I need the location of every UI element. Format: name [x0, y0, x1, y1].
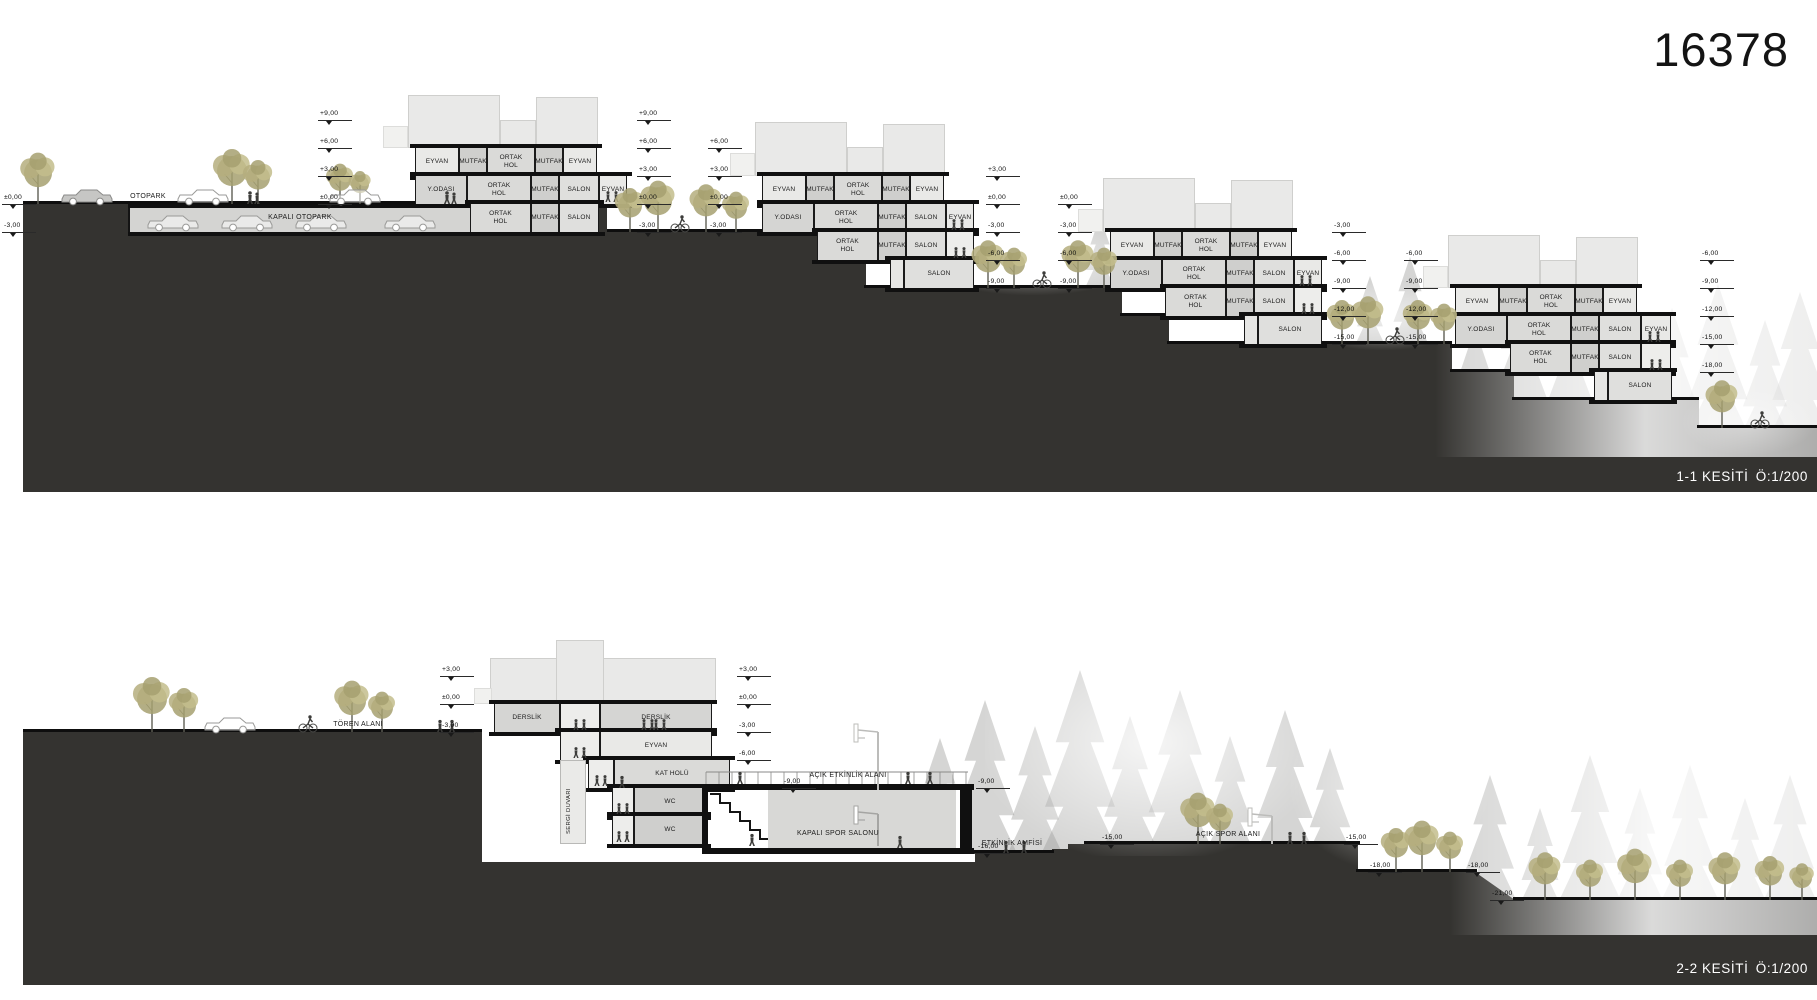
- floor-slab: [1589, 400, 1677, 404]
- elevation-arrow-icon: [1340, 317, 1346, 321]
- tree-canopy: [358, 174, 370, 186]
- elevation-arrow-icon: [1352, 845, 1358, 849]
- room-label: MUTFAK: [459, 158, 487, 166]
- elevation-value: -18,00: [1468, 862, 1488, 869]
- room-label: ORTAK HOL: [500, 154, 523, 170]
- elevation-value: -15,00: [1346, 834, 1366, 841]
- elevation-arrow-icon: [1708, 317, 1714, 321]
- tree-canopy: [1632, 853, 1651, 872]
- room-label: MUTFAK: [1571, 354, 1599, 362]
- elevation-arrow-icon: [10, 205, 16, 209]
- conifer-tree-icon: [1355, 276, 1386, 346]
- person-icon: [737, 772, 743, 784]
- room-label: ORTAK HOL: [488, 182, 511, 198]
- tree-canopy: [1758, 862, 1782, 886]
- tree-canopy: [1717, 852, 1733, 868]
- tree-canopy: [1755, 861, 1772, 878]
- person-head: [1302, 832, 1305, 835]
- tree-branch: [1797, 880, 1802, 886]
- tree-icon: [1666, 860, 1693, 900]
- elevation-arrow-icon: [326, 149, 332, 153]
- tree-canopy: [1381, 833, 1398, 850]
- elevation-line: [986, 288, 1020, 289]
- person-head: [738, 772, 741, 775]
- cyclist-head: [680, 215, 683, 218]
- floor-slab: [465, 232, 604, 236]
- elevation-arrow-icon: [1376, 873, 1382, 877]
- elevation-value: -9,00: [1702, 278, 1719, 285]
- room-label: SALON: [1608, 354, 1631, 362]
- room-label: MUTFAK: [878, 214, 906, 222]
- elevation-line: [737, 732, 771, 733]
- tree-canopy: [1583, 860, 1597, 874]
- tree-canopy: [1673, 860, 1687, 874]
- elevation-arrow-icon: [1340, 345, 1346, 349]
- tree-canopy: [734, 195, 749, 210]
- bike-frame: [1390, 331, 1400, 340]
- tree-canopy: [256, 164, 272, 180]
- room-label: SALON: [1262, 298, 1285, 306]
- tree-branch: [624, 208, 630, 215]
- tree-canopy: [35, 157, 54, 176]
- tree-icon: [1528, 852, 1560, 900]
- tree-branch: [252, 180, 258, 187]
- tree-canopy: [143, 677, 162, 696]
- elevation-line: [1700, 316, 1734, 317]
- room-label: ORTAK HOL: [836, 238, 859, 254]
- elevation-value: -12,00: [1406, 306, 1426, 313]
- building-massing: [730, 153, 755, 176]
- elevation-value: -9,00: [1060, 278, 1077, 285]
- room-label: SALON: [1608, 326, 1631, 334]
- tree-canopy: [1448, 835, 1463, 850]
- elevation-arrow-icon: [716, 177, 722, 181]
- room-stair: [1594, 372, 1608, 400]
- elevation-line: [1404, 288, 1438, 289]
- elevation-value: -12,00: [1702, 306, 1722, 313]
- tree-canopy: [1588, 863, 1603, 878]
- tree-branch: [1191, 816, 1198, 824]
- elevation-line: [708, 176, 742, 177]
- tree-canopy: [169, 693, 186, 710]
- room-label: ORTAK HOL: [1528, 322, 1551, 338]
- elevation-line: [1490, 900, 1524, 901]
- tree-canopy: [243, 165, 260, 182]
- person-head: [1288, 832, 1291, 835]
- elevation-line: [737, 760, 771, 761]
- elevation-line: [1700, 260, 1734, 261]
- room-label: SALON: [927, 270, 950, 278]
- elevation-value: -9,00: [988, 278, 1005, 285]
- ground-line: [1513, 897, 1817, 900]
- cyclist-head: [1760, 411, 1763, 414]
- tree-canopy: [20, 158, 40, 178]
- room-label: MUTFAK: [1226, 270, 1254, 278]
- tree-canopy: [1443, 832, 1457, 846]
- tree-icon: [1576, 860, 1603, 900]
- conifer-tree-icon: [1038, 670, 1122, 860]
- elevation-value: -15,00: [1406, 334, 1426, 341]
- elevation-line: [986, 232, 1020, 233]
- tree-canopy: [725, 197, 747, 219]
- tree-canopy: [1012, 251, 1027, 266]
- competition-board: 16378 EYVANMUTFAKORTAK HOLMUTFAKEYVANY.O…: [0, 0, 1817, 1000]
- site-area-label: AÇIK ETKİNLİK ALANI: [810, 772, 887, 779]
- elevation-line: [737, 704, 771, 705]
- room-label: EYVAN: [916, 186, 939, 194]
- elevation-arrow-icon: [994, 289, 1000, 293]
- elevation-value: -9,00: [1406, 278, 1423, 285]
- elevation-arrow-icon: [745, 705, 751, 709]
- person-body: [927, 775, 933, 784]
- elevation-line: [737, 676, 771, 677]
- elevation-line: [1404, 260, 1438, 261]
- tree-canopy: [1528, 857, 1547, 876]
- elevation-value: -3,00: [710, 222, 727, 229]
- room-stair: [1244, 316, 1258, 344]
- tree-canopy: [343, 681, 360, 698]
- hall-stair-well: [708, 790, 768, 848]
- elevation-value: -9,00: [1334, 278, 1351, 285]
- room-label: MUTFAK: [1499, 298, 1527, 306]
- room-label: Y.ODASI: [428, 186, 455, 194]
- room-label: ORTAK HOL: [1183, 266, 1206, 282]
- room-salon: SALON: [1258, 316, 1322, 344]
- elevation-value: ±0,00: [988, 194, 1006, 201]
- elevation-line: [708, 204, 742, 205]
- tree-canopy: [1714, 380, 1730, 396]
- person-head: [248, 191, 252, 195]
- site-area-label: ETKİNLİK AMFİSİ: [982, 840, 1043, 847]
- tree-canopy: [1720, 385, 1738, 403]
- building-massing: [536, 97, 598, 148]
- elevation-value: -3,00: [988, 222, 1005, 229]
- person-icon: [927, 772, 933, 784]
- tree-canopy: [1189, 793, 1206, 810]
- tree-branch: [700, 206, 707, 214]
- ground-line: [1697, 425, 1817, 428]
- site-area-label: OTOPARK: [130, 193, 166, 200]
- floor-slab: [607, 844, 711, 848]
- cyclist-head: [308, 715, 311, 718]
- elevation-line: [2, 204, 36, 205]
- tree-canopy: [1537, 852, 1553, 868]
- cyclist-head: [1042, 271, 1045, 274]
- tree-icon: [1430, 304, 1457, 344]
- tree-canopy: [644, 187, 672, 215]
- room-label: SALON: [1262, 270, 1285, 278]
- elevation-line: [782, 788, 816, 789]
- room-label: SALON: [567, 186, 590, 194]
- elevation-arrow-icon: [448, 677, 454, 681]
- floor-slab: [1239, 344, 1327, 348]
- elevation-arrow-icon: [984, 789, 990, 793]
- room-label: SALON: [1278, 326, 1301, 334]
- room-label: EYVAN: [1297, 270, 1320, 278]
- elevation-value: -3,00: [1060, 222, 1077, 229]
- hall-floor-slab: [702, 848, 974, 854]
- elevation-arrow-icon: [326, 205, 332, 209]
- elevation-value: -3,00: [4, 222, 21, 229]
- tree-canopy: [1218, 807, 1233, 822]
- tree-canopy: [133, 683, 155, 705]
- tree-branch: [1415, 844, 1422, 852]
- room-stair: [612, 816, 634, 844]
- elevation-value: -6,00: [1702, 250, 1719, 257]
- tree-canopy: [24, 159, 52, 187]
- person-head: [906, 772, 909, 775]
- tree-canopy: [223, 149, 242, 168]
- elevation-line: [1332, 288, 1366, 289]
- tree-branch: [225, 174, 233, 183]
- tree-icon: [1708, 852, 1740, 900]
- elevation-value: -6,00: [1406, 250, 1423, 257]
- tree-branch: [1539, 874, 1546, 882]
- tree-branch: [356, 186, 361, 191]
- conifer-tree-icon: [1518, 808, 1562, 908]
- tree-branch: [1628, 872, 1635, 880]
- room-label: EYVAN: [426, 158, 449, 166]
- conifer-tree-icon: [1204, 736, 1257, 856]
- tree-icon: [243, 160, 272, 204]
- elevation-arrow-icon: [326, 121, 332, 125]
- tree-icon: [1789, 863, 1813, 900]
- elevation-arrow-icon: [745, 761, 751, 765]
- bike-frame: [1755, 415, 1765, 424]
- tree-branch: [145, 702, 153, 711]
- tree-canopy: [1436, 836, 1452, 852]
- room-label: MUTFAK: [882, 186, 910, 194]
- tree-canopy: [1439, 837, 1461, 859]
- section-2-title: 2-2 KESİTİ Ö:1/200: [1548, 961, 1808, 976]
- floor-slab: [885, 288, 979, 292]
- elevation-line: [1058, 232, 1092, 233]
- room-wc: WC: [634, 816, 706, 844]
- tree-canopy: [1792, 868, 1812, 888]
- elevation-arrow-icon: [745, 733, 751, 737]
- tree-canopy: [1705, 385, 1724, 404]
- tree-canopy: [1789, 867, 1803, 881]
- room-label: EYVAN: [569, 158, 592, 166]
- bike-frame: [1037, 275, 1047, 284]
- hoop-arm: [858, 730, 878, 732]
- conifer-tree-icon: [1721, 798, 1769, 908]
- elevation-arrow-icon: [645, 149, 651, 153]
- tree-canopy: [380, 695, 395, 710]
- room-label: MUTFAK: [1571, 326, 1599, 334]
- room-y-odasi: Y.ODASI: [415, 176, 467, 204]
- tree-canopy: [1626, 849, 1643, 866]
- site-area-label: TÖREN ALANI: [333, 721, 383, 728]
- project-code: 16378: [1653, 22, 1789, 77]
- room-label: DERSLİK: [512, 714, 541, 722]
- bike-frame: [303, 719, 313, 728]
- elevation-line: [637, 176, 671, 177]
- elevation-line: [637, 148, 671, 149]
- room-label: KAT HOLÜ: [655, 770, 689, 778]
- room-label: MUTFAK: [1154, 242, 1182, 250]
- elevation-value: ±0,00: [442, 694, 460, 701]
- tree-branch: [1009, 266, 1015, 273]
- tree-canopy: [1389, 828, 1404, 843]
- room-ortak-hol: ORTAK HOL: [1165, 288, 1226, 316]
- room-label: WC: [664, 826, 675, 834]
- tree-canopy: [1617, 854, 1637, 874]
- tree-canopy: [1621, 855, 1649, 883]
- elevation-line: [1344, 844, 1378, 845]
- tree-branch: [1585, 878, 1591, 885]
- elevation-value: +3,00: [639, 166, 657, 173]
- tree-icon: [169, 688, 198, 732]
- room-label: EYVAN: [645, 742, 668, 750]
- elevation-value: -6,00: [739, 750, 756, 757]
- room-label: EYVAN: [602, 186, 625, 194]
- room-salon: SALON: [559, 204, 599, 232]
- tree-icon: [1755, 856, 1784, 900]
- elevation-line: [708, 232, 742, 233]
- tree-canopy: [1669, 865, 1691, 887]
- elevation-value: ±0,00: [1060, 194, 1078, 201]
- room-label: MUTFAK: [531, 186, 559, 194]
- building-massing: [1448, 235, 1540, 288]
- building-massing: [883, 124, 945, 176]
- elevation-line: [976, 853, 1010, 854]
- room-label: ORTAK HOL: [489, 210, 512, 226]
- tree-canopy: [351, 175, 369, 193]
- elevation-arrow-icon: [994, 261, 1000, 265]
- tree-canopy: [1543, 857, 1561, 875]
- elevation-line: [1368, 872, 1402, 873]
- room-label: WC: [664, 798, 675, 806]
- room-label: MUTFAK: [1575, 298, 1603, 306]
- elevation-line: [440, 732, 474, 733]
- tree-canopy: [375, 692, 389, 706]
- elevation-value: -3,00: [442, 722, 459, 729]
- room-label: EYVAN: [773, 186, 796, 194]
- elevation-line: [1058, 260, 1092, 261]
- tree-canopy: [1796, 863, 1808, 875]
- person-body: [737, 775, 743, 784]
- elevation-line: [318, 176, 352, 177]
- tree-branch: [335, 182, 341, 189]
- room-salon: SALON: [904, 260, 974, 288]
- basketball-hoop-icon: [1248, 808, 1272, 844]
- elevation-arrow-icon: [448, 705, 454, 709]
- elevation-value: +9,00: [639, 110, 657, 117]
- elevation-value: +3,00: [739, 666, 757, 673]
- elevation-arrow-icon: [1412, 317, 1418, 321]
- room-label: MUTFAK: [1230, 242, 1258, 250]
- hoop-arm: [1252, 814, 1272, 816]
- elevation-arrow-icon: [984, 854, 990, 858]
- elevation-line: [440, 676, 474, 677]
- elevation-value: -18,00: [1370, 862, 1390, 869]
- elevation-value: -18,00: [1702, 362, 1722, 369]
- tree-canopy: [338, 687, 366, 715]
- tree-canopy: [217, 156, 247, 186]
- elevation-line: [986, 260, 1020, 261]
- hall-floor-gap: [698, 854, 975, 862]
- tree-branch: [31, 176, 38, 184]
- room-y-odasi: Y.ODASI: [1110, 260, 1162, 288]
- elevation-arrow-icon: [1340, 233, 1346, 237]
- fog-haze: [985, 628, 1315, 856]
- room-label: SALON: [914, 214, 937, 222]
- room-label: ORTAK HOL: [835, 210, 858, 226]
- room-label: EYVAN: [949, 214, 972, 222]
- elevation-arrow-icon: [448, 733, 454, 737]
- tree-canopy: [1579, 865, 1601, 887]
- hoop-backboard: [1248, 808, 1252, 826]
- elevation-arrow-icon: [745, 677, 751, 681]
- building-massing: [1103, 178, 1195, 232]
- tree-canopy: [1419, 825, 1438, 844]
- tree-canopy: [1404, 826, 1424, 846]
- elevation-line: [440, 704, 474, 705]
- tree-canopy: [1437, 304, 1451, 318]
- elevation-line: [1700, 288, 1734, 289]
- tree-branch: [1215, 822, 1221, 829]
- elevation-arrow-icon: [1108, 845, 1114, 849]
- room-mutfak: MUTFAK: [531, 204, 559, 232]
- elevation-arrow-icon: [645, 205, 651, 209]
- elevation-value: -3,00: [1334, 222, 1351, 229]
- person-icon: [905, 772, 911, 784]
- room-dersli-k: DERSLİK: [494, 704, 560, 732]
- elevation-value: -12,00: [1334, 306, 1354, 313]
- tree-canopy: [349, 685, 368, 704]
- tree-canopy: [1384, 834, 1408, 858]
- elevation-arrow-icon: [1340, 289, 1346, 293]
- tree-canopy: [29, 153, 46, 170]
- tree-canopy: [1213, 804, 1227, 818]
- tree-canopy: [1003, 253, 1025, 275]
- tree-branch: [1362, 318, 1369, 326]
- room-label: ORTAK HOL: [1529, 350, 1552, 366]
- tree-canopy: [1413, 821, 1430, 838]
- tree-branch: [1390, 848, 1396, 855]
- conifer-tree-icon: [1614, 788, 1667, 908]
- elevation-arrow-icon: [716, 149, 722, 153]
- elevation-line: [1100, 844, 1134, 845]
- exhibition-wall-label: SERGİ DUVARI: [566, 772, 572, 834]
- tree-branch: [1764, 876, 1770, 883]
- tree-icon: [1705, 380, 1737, 428]
- conifer-tree-icon: [1006, 726, 1063, 856]
- tree-canopy: [1360, 296, 1376, 312]
- room-y-odasi: Y.ODASI: [1455, 316, 1507, 344]
- elevation-value: +6,00: [710, 138, 728, 145]
- elevation-arrow-icon: [645, 233, 651, 237]
- tree-canopy: [1709, 386, 1735, 412]
- elevation-value: +6,00: [320, 138, 338, 145]
- building-massing: [1423, 266, 1448, 288]
- elevation-arrow-icon: [994, 233, 1000, 237]
- tree-branch: [651, 204, 658, 212]
- room-label: SALON: [1628, 382, 1651, 390]
- tree-canopy: [1180, 798, 1200, 818]
- tree-branch: [345, 704, 352, 712]
- elevation-value: +3,00: [710, 166, 728, 173]
- tree-branch: [1439, 322, 1445, 329]
- elevation-arrow-icon: [994, 177, 1000, 181]
- elevation-arrow-icon: [1708, 345, 1714, 349]
- elevation-line: [1332, 232, 1366, 233]
- person-head: [928, 772, 931, 775]
- elevation-value: -3,00: [639, 222, 656, 229]
- elevation-value: +3,00: [320, 166, 338, 173]
- elevation-arrow-icon: [1066, 205, 1072, 209]
